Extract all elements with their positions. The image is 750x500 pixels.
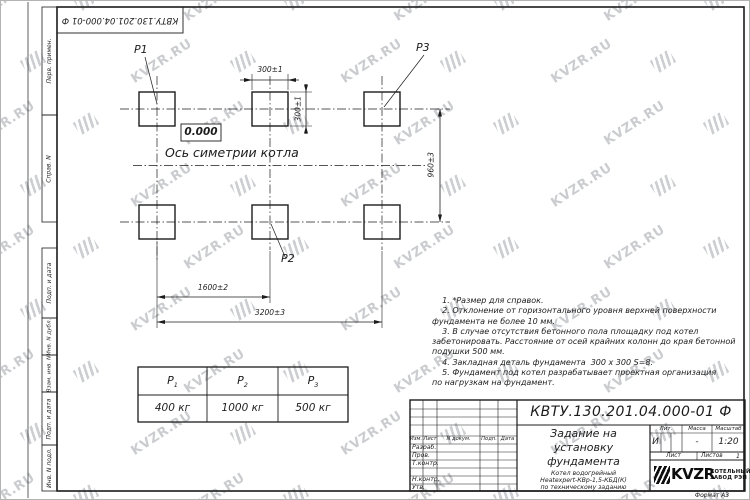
row-utv: Утв.	[412, 485, 425, 491]
title-block-doc-number: КВТУ.130.201.04.000-01 Ф	[517, 400, 745, 425]
pad-label-p2: P2	[281, 253, 295, 264]
format-note: Формат А3	[686, 493, 738, 499]
foundation-plan	[120, 55, 450, 328]
col-data: Дата	[498, 437, 517, 442]
subtitle-line: по техническому заданию	[517, 484, 650, 491]
lit-label: Лит.	[650, 427, 682, 433]
dim-pad-width: 300±1	[250, 66, 290, 74]
p-subscript: 3	[314, 381, 318, 389]
note-line: 1. *Размер для справок.	[432, 296, 735, 306]
kvzr-logo-icon	[654, 466, 670, 484]
row-razrab: Разраб.	[412, 445, 436, 451]
kvzr-logo-text: KVZR	[671, 465, 715, 483]
title-line: фундамента	[517, 455, 650, 469]
note-line: забетонировать. Расстояние от осей крайн…	[432, 337, 735, 347]
col-n-dokum: N докум.	[437, 437, 480, 442]
row-prov: Пров.	[412, 453, 430, 459]
drawing-sheet: KVZR.RUKVZR.RUKVZR.RUKVZR.RUKVZR.RUKVZR.…	[0, 0, 750, 500]
note-line: по нагрузкам на фундамент.	[432, 378, 735, 388]
lit-value: И	[650, 433, 661, 452]
col-list: Лист	[423, 437, 437, 442]
margin-label-perv-primen: Перв. примен.	[45, 7, 55, 115]
load-header-p2: P2	[207, 367, 278, 395]
load-header-p1: P1	[138, 367, 207, 395]
scale-value: 1:20	[712, 433, 745, 452]
subtitle-line: Котел водогрейный	[517, 470, 650, 477]
top-stamp-doc-number: КВТУ.130.201.04.000-01 Ф	[57, 7, 183, 33]
load-value-p3: 500 кг	[278, 395, 348, 422]
symmetry-axis-caption: Ось симетрии котла	[165, 147, 299, 160]
p-symbol: P	[167, 374, 174, 387]
title-line: установку	[517, 441, 650, 455]
margin-label-inv-podl: Инв. N подл.	[45, 445, 55, 491]
p-subscript: 1	[174, 381, 178, 389]
sheet-label: Лист	[650, 454, 697, 460]
note-line: 3. В случае отсутствия бетонного пола пл…	[432, 327, 735, 337]
load-header-p3: P3	[278, 367, 348, 395]
title-block-title: Задание на установку фундамента	[517, 427, 650, 469]
title-line: Задание на	[517, 427, 650, 441]
p-subscript: 2	[244, 381, 248, 389]
dim-full-pitch: 3200±3	[248, 309, 292, 317]
mass-value: -	[682, 433, 712, 452]
company-line2: ЗАВОД РЭП	[710, 475, 750, 481]
note-line: фундамента не более 10 мм.	[432, 317, 735, 327]
margin-label-sprav-n: Справ. N	[45, 115, 55, 222]
scale-label: Масштаб	[712, 427, 745, 433]
row-nkontr: Н.контр.	[412, 477, 440, 483]
title-block-subtitle: Котел водогрейный Heatexpert-КВр-1,5-КБД…	[517, 470, 650, 491]
pad-label-p3: P3	[416, 42, 430, 53]
note-line: 2. Отклонение от горизонтального уровня …	[432, 306, 735, 316]
load-value-p2: 1000 кг	[207, 395, 278, 422]
elevation-mark: 0.000	[181, 124, 221, 141]
sheets-value: 1	[736, 454, 740, 460]
col-izm: Изм.	[409, 437, 423, 442]
note-line: подушки 500 мм.	[432, 347, 735, 357]
margin-label-inv-dubl: Инв. N дубл.	[45, 318, 55, 355]
p-symbol: P	[237, 374, 244, 387]
technical-notes: 1. *Размер для справок. 2. Отклонение от…	[432, 296, 735, 389]
dim-pad-height: 300±1	[294, 89, 302, 129]
load-value-p1: 400 кг	[138, 395, 207, 422]
sheets-label: Листов	[701, 454, 723, 460]
note-line: 5. Фундамент под котел разрабатывает про…	[432, 368, 735, 378]
note-line: 4. Закладная деталь фундамента 300 х 300…	[432, 358, 735, 368]
dim-half-pitch: 1600±2	[191, 284, 235, 292]
drawing-canvas	[0, 0, 750, 500]
pad-label-p1: P1	[134, 44, 148, 55]
margin-label-podp-data-2: Подп. и дата	[45, 392, 55, 445]
row-tkontr: Т.контр.	[412, 461, 439, 467]
subtitle-line: Heatexpert-КВр-1,5-КБД(К)	[517, 477, 650, 484]
company-name: КОТЕЛЬНЫЙ ЗАВОД РЭП	[710, 469, 750, 481]
dim-row-pitch: 960±3	[427, 145, 435, 185]
mass-label: Масса	[682, 427, 712, 433]
margin-label-vzam-inv: Взам. инв. N	[45, 355, 55, 392]
margin-label-podp-data-1: Подп. и дата	[45, 248, 55, 318]
col-podp: Подп.	[480, 437, 498, 442]
